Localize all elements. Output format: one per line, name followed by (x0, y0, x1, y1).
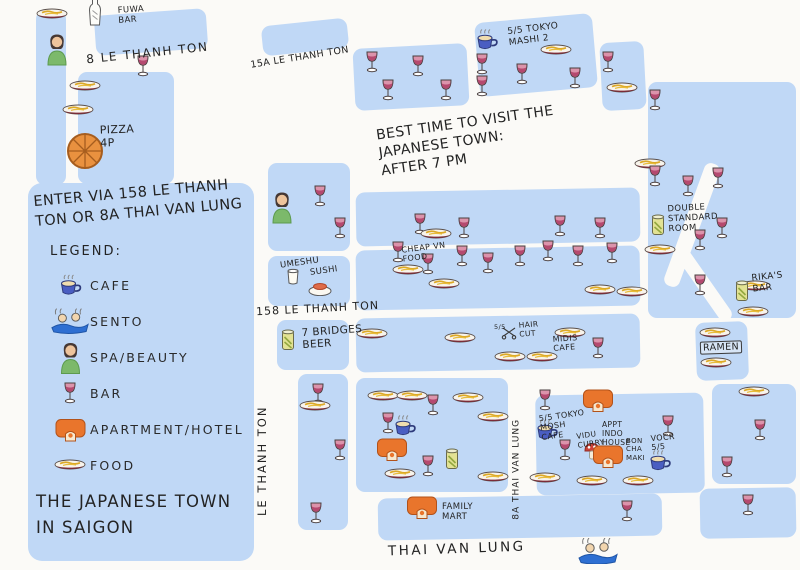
wine-glass-icon (312, 185, 328, 207)
legend-heading: LEGEND: (50, 244, 244, 259)
wine-glass-icon (552, 215, 568, 237)
wine-glass-icon (680, 175, 696, 197)
food-plate-icon (299, 400, 331, 412)
wine-glass-icon (420, 455, 436, 477)
legend-item-label: SENTO (90, 314, 144, 329)
food-plate-icon (420, 228, 452, 240)
place-label-hair-cut: HAIR CUT (518, 320, 539, 339)
wine-glass-icon (512, 245, 528, 267)
wine-glass-icon (480, 252, 496, 274)
place-label-double-standard-room: DOUBLE STANDARD ROOM (667, 202, 718, 235)
food-plate-icon (384, 468, 416, 480)
legend-item: APARTMENT/HOTEL (50, 411, 244, 447)
drink-can-icon (650, 214, 666, 237)
food-plate-icon (477, 411, 509, 423)
place-label-7-bridges-beer: 7 BRIDGES BEER (301, 323, 363, 352)
street-label-8a-thai-van-lung-vertical: 8A THAI VAN LUNG (512, 414, 523, 524)
legend-item-label: SPA/BEAUTY (90, 350, 189, 365)
legend-item-label: CAFE (90, 278, 131, 293)
wine-glass-icon (332, 217, 348, 239)
wine-glass-icon (438, 79, 454, 101)
place-label-vocr: VOCR 5/5 (650, 432, 676, 453)
food-plate-icon (540, 44, 572, 56)
wine-glass-icon (710, 167, 726, 189)
food-plate-icon (50, 459, 90, 471)
food-plate-icon (738, 386, 770, 398)
place-label-bon-cha-maki: BON CHA MAKI (626, 437, 645, 462)
food-plate-icon (494, 351, 526, 363)
drink-can-icon (444, 448, 460, 471)
food-plate-icon (69, 80, 101, 92)
wine-glass-icon (50, 382, 90, 404)
wine-glass-icon (308, 502, 324, 524)
spa-woman-icon (46, 33, 69, 66)
umeshu-glass-icon (286, 269, 301, 286)
apartment-icon (377, 437, 408, 462)
legend-item-label: APARTMENT/HOTEL (90, 422, 244, 437)
sento-bath-icon (577, 538, 619, 564)
legend-item: SPA/BEAUTY (50, 339, 244, 375)
wine-glass-icon (456, 217, 472, 239)
wine-glass-icon (692, 274, 708, 296)
place-label-midis-cafe: MIDIS CAFE (552, 333, 578, 354)
apartment-icon (50, 417, 90, 442)
food-plate-icon (699, 327, 731, 339)
food-plate-icon (700, 357, 732, 369)
place-label-rikas-bar: RIKA'S BAR (751, 270, 784, 294)
cafe-mug-icon (475, 29, 500, 52)
wine-glass-icon (719, 456, 735, 478)
wine-glass-icon (537, 389, 553, 411)
map-title: THE JAPANESE TOWN IN SAIGON (36, 489, 231, 540)
drink-can-icon (734, 280, 750, 303)
food-plate-icon (576, 475, 608, 487)
wine-glass-icon (540, 240, 556, 262)
cafe-mug-icon (393, 415, 418, 438)
food-plate-icon (36, 8, 68, 20)
sushi-icon (308, 282, 332, 296)
legend-item: CAFE (50, 267, 244, 303)
legend-item: FOOD (50, 447, 244, 483)
food-plate-icon (737, 306, 769, 318)
legend-item-label: FOOD (90, 458, 135, 473)
wine-glass-icon (570, 245, 586, 267)
legend-item: BAR (50, 375, 244, 411)
food-plate-icon (529, 472, 561, 484)
wine-glass-icon (380, 79, 396, 101)
legend: LEGEND: CAFE SENTO SPA/BEAUTY BAR APARTM… (50, 244, 244, 483)
place-label-pizza-4p: PIZZA 4P (100, 123, 135, 150)
wine-glass-icon (425, 394, 441, 416)
food-plate-icon (428, 278, 460, 290)
food-plate-icon (477, 471, 509, 483)
food-plate-icon (584, 284, 616, 296)
wine-glass-icon (740, 494, 756, 516)
wine-glass-icon (647, 89, 663, 111)
wine-glass-icon (590, 337, 606, 359)
food-plate-icon (452, 392, 484, 404)
food-plate-icon (606, 82, 638, 94)
wine-glass-icon (364, 51, 380, 73)
food-plate-icon (392, 264, 424, 276)
wine-glass-icon (454, 245, 470, 267)
wine-glass-icon (410, 55, 426, 77)
place-label-fuwa-bar: FUWA BAR (117, 4, 145, 26)
wine-glass-icon (514, 63, 530, 85)
apartment-icon (407, 495, 438, 520)
place-label-family-mart: FAMILY MART (442, 502, 473, 522)
place-label-vidu-curry: VIDU CURRY (576, 429, 605, 450)
food-plate-icon (616, 286, 648, 298)
food-plate-icon (644, 244, 676, 256)
wine-glass-icon (332, 439, 348, 461)
wine-glass-icon (567, 67, 583, 89)
pizza-icon (66, 132, 104, 170)
wine-glass-icon (647, 165, 663, 187)
sento-bath-icon (50, 308, 90, 334)
street-label-le-thanh-ton-vertical: LE THANH TON (256, 396, 270, 526)
wine-glass-icon (600, 51, 616, 73)
legend-item-label: BAR (90, 386, 122, 401)
spa-woman-icon (50, 341, 90, 374)
wine-glass-icon (752, 419, 768, 441)
wine-glass-icon (619, 500, 635, 522)
drink-can-icon (280, 329, 296, 352)
food-plate-icon (367, 390, 399, 402)
food-plate-icon (396, 390, 428, 402)
legend-item: SENTO (50, 303, 244, 339)
place-label-ramen: RAMEN (700, 340, 742, 355)
food-plate-icon (444, 332, 476, 344)
wine-glass-icon (474, 75, 490, 97)
food-plate-icon (62, 104, 94, 116)
spa-woman-icon (271, 191, 294, 224)
apartment-icon (583, 388, 614, 413)
food-plate-icon (622, 475, 654, 487)
wine-glass-icon (474, 53, 490, 75)
wine-glass-icon (604, 242, 620, 264)
place-label-hair-cut-score: 5/5 (494, 324, 506, 332)
wine-glass-icon (557, 439, 573, 461)
bottle-icon (88, 0, 102, 27)
cafe-mug-icon (50, 274, 90, 297)
japan-town-map: FUWA BAR 8 LE THANH TON PIZZA 4P ENTER V… (0, 0, 800, 570)
wine-glass-icon (592, 217, 608, 239)
